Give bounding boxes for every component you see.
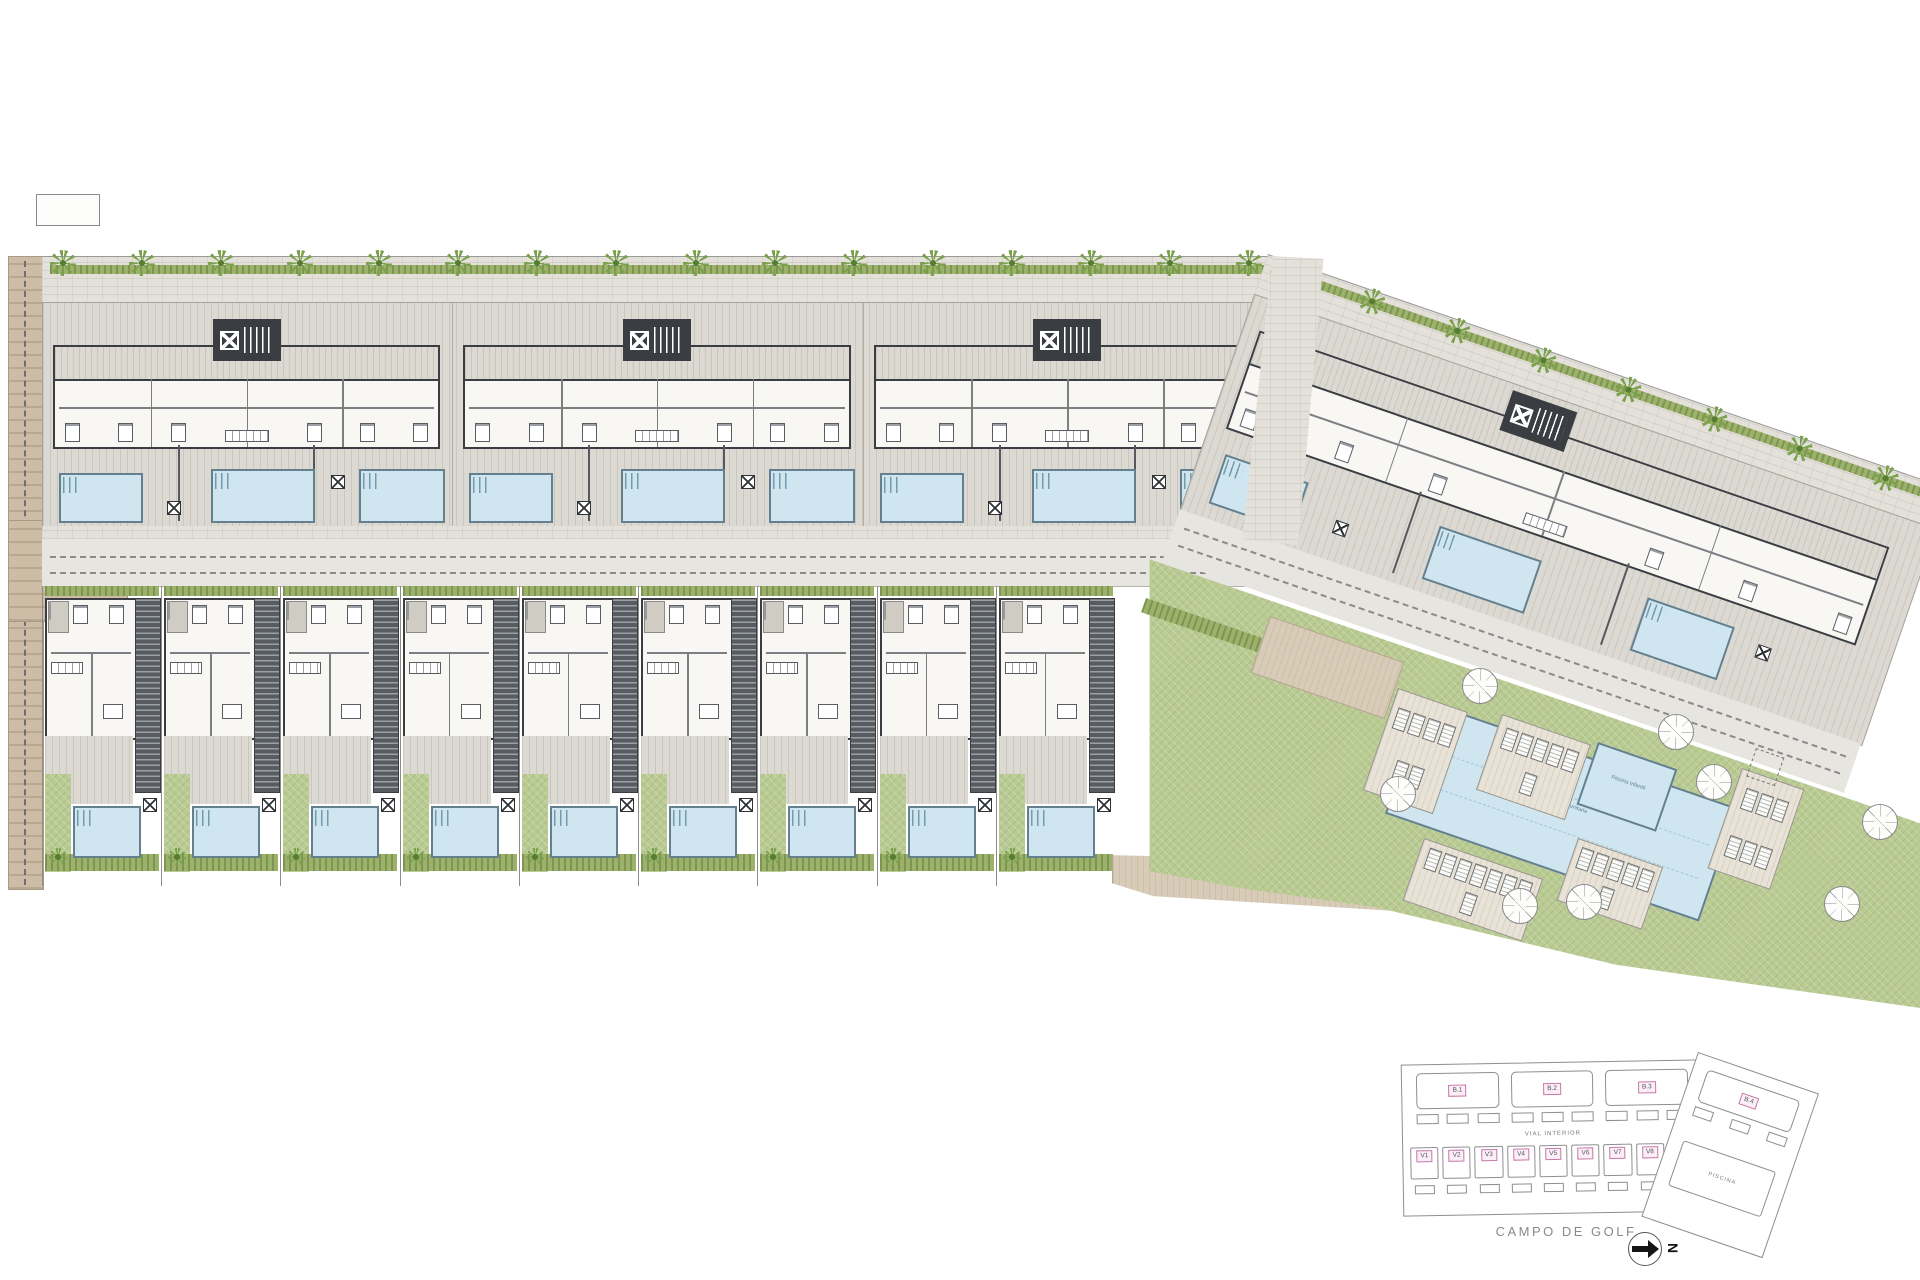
private-pool <box>59 473 143 523</box>
pool-outline <box>1512 1183 1532 1192</box>
bathtub-icon <box>48 601 69 633</box>
tree-icon <box>445 250 471 276</box>
key-plan-villa: V5 <box>1539 1145 1568 1192</box>
key-plan-block-b2: B.2 <box>1511 1070 1595 1122</box>
block-outline: B.3 <box>1605 1069 1688 1106</box>
villa-label: V7 <box>1610 1147 1626 1159</box>
sun-lounger <box>1769 798 1788 823</box>
villa-staircase <box>850 598 876 793</box>
villa-label: V1 <box>1416 1150 1432 1162</box>
interior-wall <box>210 652 212 738</box>
bed-icon <box>307 423 322 442</box>
bed-icon <box>824 423 839 442</box>
bed-icon <box>73 605 88 624</box>
parasol-icon <box>1824 886 1860 922</box>
parasol-icon <box>1862 804 1898 840</box>
villa-floor-plan <box>403 598 495 740</box>
villa-staircase <box>1089 598 1115 793</box>
tree-icon <box>1355 285 1388 318</box>
pool-steps <box>554 810 572 826</box>
utility-box <box>36 194 100 226</box>
key-plan-blocks-row: B.1 B.2 <box>1410 1069 1695 1125</box>
villa-staircase <box>254 598 280 793</box>
pool-steps <box>473 477 491 493</box>
apartment-blocks-band <box>42 302 1274 528</box>
unit-divider-wall <box>1600 563 1630 645</box>
utility-hatch-icon <box>167 501 181 515</box>
interior-road <box>42 526 1274 587</box>
bed-icon <box>550 605 565 624</box>
tree-icon <box>999 250 1025 276</box>
key-plan-villa: V3 <box>1475 1146 1504 1193</box>
tree-icon <box>1698 403 1731 436</box>
villa-unit <box>638 586 757 886</box>
villa-front-hedge <box>999 586 1113 596</box>
bathtub-basin <box>407 601 409 620</box>
bed-icon <box>788 605 803 624</box>
kitchen-counter-icon <box>289 662 321 674</box>
key-plan-block-b1: B.1 <box>1416 1072 1500 1124</box>
villa-front-hedge <box>164 586 278 596</box>
villa-label: V5 <box>1545 1148 1561 1160</box>
villa-pool <box>311 806 379 858</box>
dining-table-icon <box>341 704 361 719</box>
parasol-icon <box>1462 668 1498 704</box>
utility-hatch-icon <box>858 798 872 812</box>
villa-floor-plan <box>45 598 137 740</box>
villa-pool <box>669 806 737 858</box>
interior-wall <box>1045 652 1047 738</box>
private-pool <box>211 469 315 523</box>
pool-steps <box>215 473 233 489</box>
stair-rungs-icon <box>654 327 684 353</box>
palm-tree-icon <box>1003 848 1021 866</box>
site-plan-canvas: Piscina Comunitaria Piscina Infantil B. <box>0 0 1920 1280</box>
block-outline: B.1 <box>1416 1072 1499 1109</box>
kitchen-counter-icon <box>1005 662 1037 674</box>
sun-lounger <box>1560 748 1579 773</box>
bed-icon <box>992 423 1007 442</box>
elevator-icon <box>1510 403 1534 427</box>
block-label: B.3 <box>1638 1081 1656 1093</box>
bathtub-icon <box>644 601 665 633</box>
stair-core <box>623 319 691 361</box>
key-plan: B.1 B.2 <box>1396 1048 1828 1280</box>
bed-icon <box>311 605 326 624</box>
north-tree-row <box>50 248 1262 278</box>
villa-front-hedge <box>522 586 636 596</box>
parasol-icon <box>1658 714 1694 750</box>
bathtub-icon <box>286 601 307 633</box>
bed-icon <box>413 423 428 442</box>
elevator-icon <box>1040 331 1059 350</box>
kitchen-counter-icon <box>886 662 918 674</box>
villa-label: V8 <box>1642 1146 1658 1158</box>
bed-icon <box>109 605 124 624</box>
dining-table-icon <box>222 704 242 719</box>
furniture-row <box>65 423 428 442</box>
bed-icon <box>705 605 720 624</box>
bathtub-icon <box>1002 601 1023 633</box>
villa-pool <box>431 806 499 858</box>
tree-icon <box>841 250 867 276</box>
bathtub-icon <box>525 601 546 633</box>
bed-icon <box>360 423 375 442</box>
bed-icon <box>717 423 732 442</box>
villas-band <box>42 586 1115 886</box>
dining-table-icon <box>103 704 123 719</box>
key-plan-villa: V6 <box>1571 1144 1600 1191</box>
sun-lounger <box>1518 772 1537 797</box>
tree-icon <box>603 250 629 276</box>
bathtub-basin <box>1003 601 1005 620</box>
bed-icon <box>1428 473 1448 496</box>
pool-steps <box>196 810 214 826</box>
pool-outline <box>1477 1113 1499 1123</box>
kitchen-counter-icon <box>647 662 679 674</box>
utility-hatch-icon <box>741 475 755 489</box>
interior-wall <box>59 407 434 409</box>
villa-front-hedge <box>641 586 755 596</box>
pool-steps <box>315 810 333 826</box>
pool-outline <box>1415 1185 1435 1194</box>
villa-staircase <box>493 598 519 793</box>
parasol-icon <box>1380 776 1416 812</box>
villa-front-hedge <box>283 586 397 596</box>
sun-lounger <box>1458 891 1477 916</box>
bathtub-basin <box>764 601 766 620</box>
pool-steps <box>625 473 643 489</box>
tree-icon <box>524 250 550 276</box>
tree-icon <box>1078 250 1104 276</box>
bed-icon <box>944 605 959 624</box>
furniture-row <box>475 423 838 442</box>
villa-staircase <box>970 598 996 793</box>
bed-icon <box>118 423 133 442</box>
parasol-icon <box>1566 884 1602 920</box>
road-sidewalk-edge <box>42 526 1274 539</box>
kitchen-counter-icon <box>170 662 202 674</box>
pool-steps <box>673 810 691 826</box>
tree-icon <box>1783 432 1816 465</box>
north-letter: N <box>1665 1243 1681 1253</box>
pool-outline <box>1479 1184 1499 1193</box>
utility-hatch-icon <box>1332 520 1350 538</box>
private-pool <box>469 473 553 523</box>
dining-table-icon <box>938 704 958 719</box>
bed-icon <box>1334 441 1354 464</box>
kitchen-counter-icon <box>1522 512 1568 538</box>
villa-staircase <box>731 598 757 793</box>
pool-steps <box>435 810 453 826</box>
palm-tree-icon <box>884 848 902 866</box>
kitchen-counter-icon <box>51 662 83 674</box>
bed-icon <box>824 605 839 624</box>
interior-wall <box>806 652 808 738</box>
tree-icon <box>208 250 234 276</box>
key-plan-villa: V2 <box>1442 1146 1471 1193</box>
tree-icon <box>1527 344 1560 377</box>
villa-floor-plan <box>999 598 1091 740</box>
utility-hatch-icon <box>143 798 157 812</box>
villa-staircase <box>135 598 161 793</box>
private-pool <box>621 469 725 523</box>
pool-steps <box>1437 531 1459 552</box>
pool-outline <box>1417 1114 1439 1124</box>
key-plan-villa: V1 <box>1410 1147 1439 1194</box>
utility-hatch-icon <box>331 475 345 489</box>
villa-floor-plan <box>164 598 256 740</box>
pool-steps <box>884 477 902 493</box>
bathtub-icon <box>167 601 188 633</box>
bed-icon <box>192 605 207 624</box>
unit-divider-wall <box>1392 491 1422 573</box>
road-marking-dashed <box>50 556 1266 558</box>
dining-table-icon <box>1057 704 1077 719</box>
bed-icon <box>1128 423 1143 442</box>
elevator-icon <box>630 331 649 350</box>
villa-unit <box>400 586 519 886</box>
tree-icon <box>1157 250 1183 276</box>
villa-label: V2 <box>1449 1150 1465 1162</box>
north-arrow <box>1628 1232 1662 1266</box>
bathtub-basin <box>884 601 886 620</box>
private-pool <box>880 473 964 523</box>
pool-steps <box>363 473 381 489</box>
bathtub-icon <box>763 601 784 633</box>
elevator-icon <box>220 331 239 350</box>
pool-outline <box>1542 1112 1564 1122</box>
villa-staircase <box>373 598 399 793</box>
parasol-icon <box>1502 888 1538 924</box>
bathtub-basin <box>526 601 528 620</box>
bed-icon <box>1832 612 1852 635</box>
dining-table-icon <box>818 704 838 719</box>
interior-wall <box>469 407 844 409</box>
pool-outline <box>1572 1111 1594 1121</box>
pool-steps <box>912 810 930 826</box>
pool-outline <box>1729 1119 1751 1135</box>
pool-steps <box>1036 473 1054 489</box>
stair-rungs-icon <box>1064 327 1094 353</box>
villa-label: V4 <box>1513 1148 1529 1160</box>
tree-icon <box>1236 250 1262 276</box>
tree-icon <box>1612 373 1645 406</box>
furniture-row <box>886 423 1249 442</box>
key-plan-villa: V7 <box>1603 1144 1632 1191</box>
piscina-label: PISCINA <box>1707 1171 1736 1186</box>
private-pool <box>769 469 855 523</box>
bed-icon <box>1644 547 1664 570</box>
villa-unit <box>757 586 876 886</box>
dining-table-icon <box>580 704 600 719</box>
block-pools-row <box>1417 1113 1500 1124</box>
tree-icon <box>683 250 709 276</box>
dining-table-icon <box>699 704 719 719</box>
utility-hatch-icon <box>1152 475 1166 489</box>
utility-hatch-icon <box>1097 798 1111 812</box>
bed-icon <box>582 423 597 442</box>
bed-icon <box>939 423 954 442</box>
pool-steps <box>1645 602 1667 623</box>
utility-hatch-icon <box>978 798 992 812</box>
key-plan-villa: V4 <box>1507 1145 1536 1192</box>
stair-core <box>213 319 281 361</box>
pool-steps <box>1223 459 1245 480</box>
bathtub-basin <box>168 601 170 620</box>
bed-icon <box>1181 423 1196 442</box>
interior-wall <box>568 652 570 738</box>
parasol-icon <box>1696 764 1732 800</box>
pool-outline <box>1447 1185 1467 1194</box>
bed-icon <box>1027 605 1042 624</box>
bed-icon <box>586 605 601 624</box>
pool-outline <box>1692 1106 1714 1122</box>
tree-icon <box>50 250 76 276</box>
villa-unit <box>42 586 161 886</box>
interior-wall <box>687 652 689 738</box>
bed-icon <box>171 423 186 442</box>
bed-icon <box>431 605 446 624</box>
villa-floor-plan <box>641 598 733 740</box>
villa-label: V6 <box>1577 1147 1593 1159</box>
villa-pool <box>73 806 141 858</box>
pool-steps <box>77 810 95 826</box>
kitchen-counter-icon <box>766 662 798 674</box>
block-label: B.4 <box>1738 1093 1759 1110</box>
tree-icon <box>287 250 313 276</box>
apartment-block <box>452 303 862 527</box>
villa-pool <box>908 806 976 858</box>
villa-pool <box>550 806 618 858</box>
pool-steps <box>792 810 810 826</box>
tree-icon <box>366 250 392 276</box>
villa-floor-plan <box>760 598 852 740</box>
piscina-building-outline: PISCINA <box>1668 1140 1776 1217</box>
pool-outline <box>1447 1113 1469 1123</box>
block-label: B.1 <box>1449 1085 1467 1097</box>
key-plan-road-label: VIAL INTERIOR <box>1403 1128 1703 1139</box>
sun-lounger <box>1635 868 1654 893</box>
utility-hatch-icon <box>620 798 634 812</box>
pool-steps <box>773 473 791 489</box>
bed-icon <box>467 605 482 624</box>
villa-unit <box>877 586 996 886</box>
interior-wall <box>926 652 928 738</box>
bed-icon <box>228 605 243 624</box>
bed-icon <box>1063 605 1078 624</box>
palm-tree-icon <box>526 848 544 866</box>
villa-unit <box>519 586 638 886</box>
villa-front-hedge <box>45 586 159 596</box>
kitchen-counter-icon <box>1045 430 1089 442</box>
villa-floor-plan <box>522 598 614 740</box>
utility-hatch-icon <box>381 798 395 812</box>
bed-icon <box>1738 580 1758 603</box>
block-pools-row <box>1511 1111 1594 1122</box>
kitchen-counter-icon <box>225 430 269 442</box>
private-pool <box>1630 597 1735 680</box>
utility-hatch-icon <box>739 798 753 812</box>
palm-tree-icon <box>49 848 67 866</box>
pool-steps <box>63 477 81 493</box>
utility-hatch-icon <box>501 798 515 812</box>
bed-icon <box>529 423 544 442</box>
palm-tree-icon <box>645 848 663 866</box>
utility-hatch-icon <box>1754 644 1772 662</box>
bathtub-basin <box>287 601 289 620</box>
pool-outline <box>1576 1182 1596 1191</box>
bed-icon <box>475 423 490 442</box>
bed-icon <box>770 423 785 442</box>
pool-outline <box>1636 1110 1658 1120</box>
private-pool <box>359 469 445 523</box>
kitchen-counter-icon <box>409 662 441 674</box>
block-label: B.2 <box>1543 1083 1561 1095</box>
pool-outline <box>1511 1112 1533 1122</box>
villa-pool <box>1027 806 1095 858</box>
bed-icon <box>347 605 362 624</box>
block-outline: B.2 <box>1511 1070 1594 1107</box>
tree-icon <box>762 250 788 276</box>
villa-staircase <box>612 598 638 793</box>
kitchen-counter-icon <box>528 662 560 674</box>
villa-front-hedge <box>760 586 874 596</box>
bed-icon <box>908 605 923 624</box>
palm-tree-icon <box>407 848 425 866</box>
villa-unit <box>161 586 280 886</box>
bed-icon <box>886 423 901 442</box>
bathtub-icon <box>883 601 904 633</box>
stair-rungs-icon <box>244 327 274 353</box>
villa-front-hedge <box>403 586 517 596</box>
bathtub-basin <box>49 601 51 620</box>
pool-steps <box>1031 810 1049 826</box>
bathtub-basin <box>645 601 647 620</box>
villa-floor-plan <box>880 598 972 740</box>
pool-outline <box>1766 1131 1788 1147</box>
private-pool <box>1032 469 1136 523</box>
road-marking-dashed <box>50 572 1266 574</box>
utility-hatch-icon <box>577 501 591 515</box>
pool-outline <box>1606 1111 1628 1121</box>
bathtub-icon <box>406 601 427 633</box>
utility-hatch-icon <box>988 501 1002 515</box>
interior-wall <box>880 407 1255 409</box>
pool-outline <box>1608 1182 1628 1191</box>
villa-pool <box>788 806 856 858</box>
tree-icon <box>920 250 946 276</box>
villa-unit <box>996 586 1115 886</box>
dining-table-icon <box>461 704 481 719</box>
villa-label: V3 <box>1481 1149 1497 1161</box>
tree-icon <box>1441 314 1474 347</box>
apartment-block <box>43 303 452 527</box>
apartment-building-footprint <box>53 345 440 449</box>
utility-hatch-icon <box>262 798 276 812</box>
north-arrow-bar <box>1632 1246 1649 1252</box>
interior-wall <box>449 652 451 738</box>
interior-wall <box>329 652 331 738</box>
tree-icon <box>129 250 155 276</box>
apartment-building-footprint <box>463 345 850 449</box>
sun-lounger <box>1437 723 1456 748</box>
sun-lounger <box>1753 845 1772 870</box>
bed-icon <box>669 605 684 624</box>
villa-floor-plan <box>283 598 375 740</box>
bed-icon <box>65 423 80 442</box>
kids-pool-label: Piscina Infantil <box>1589 767 1667 799</box>
